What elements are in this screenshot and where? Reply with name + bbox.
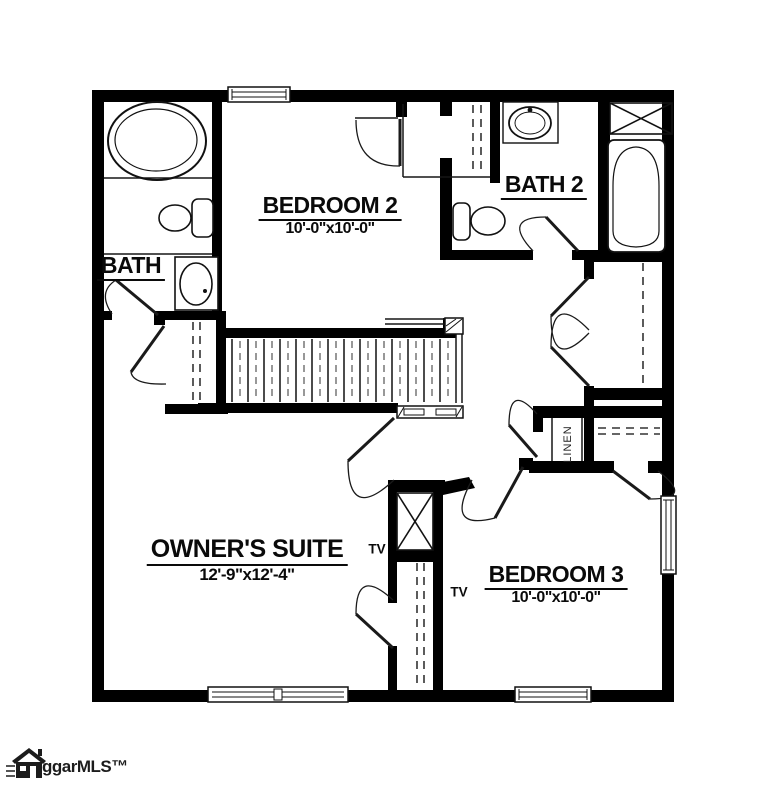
- room-label-bath2: BATH 2: [501, 172, 587, 200]
- floor-plan-page: BEDROOM 2 10'-0"x10'-0" BATH BATH 2 OWNE…: [0, 0, 772, 800]
- owner-bath-tub-icon: [108, 102, 206, 180]
- room-label-bedroom2: BEDROOM 2 10'-0"x10'-0": [259, 193, 402, 238]
- bath2-toilet-icon: [453, 203, 505, 240]
- bath2-name: BATH 2: [501, 172, 587, 200]
- room-label-bath: BATH: [97, 253, 165, 281]
- room-label-owners-suite: OWNER'S SUITE 12'-9"x12'-4": [147, 536, 348, 585]
- room-label-bedroom3: BEDROOM 3 10'-0"x10'-0": [485, 562, 628, 607]
- tv-label-bedroom3: TV: [450, 585, 467, 600]
- bath2-tub-icon: [608, 140, 665, 252]
- bedroom3-dims: 10'-0"x10'-0": [511, 589, 600, 606]
- window-owners-suite: [208, 687, 348, 702]
- stair-newel: [445, 318, 463, 334]
- window-bedroom3-bottom: [515, 687, 591, 702]
- chase-x-tv: [397, 493, 433, 550]
- window-bedroom2: [228, 87, 290, 102]
- stair-railing: [397, 406, 463, 418]
- window-bedroom3-right: [661, 496, 676, 574]
- mls-watermark: ggarMLS™: [5, 744, 128, 780]
- bedroom2-dims: 10'-0"x10'-0": [285, 220, 374, 237]
- bath-name: BATH: [97, 253, 165, 281]
- owners-suite-dims: 12'-9"x12'-4": [199, 565, 294, 584]
- owners-suite-name: OWNER'S SUITE: [147, 536, 348, 566]
- bath2-sink-icon: [503, 102, 558, 143]
- bedroom3-name: BEDROOM 3: [485, 562, 628, 590]
- bedroom2-name: BEDROOM 2: [259, 193, 402, 221]
- mls-watermark-text: ggarMLS™: [42, 757, 128, 777]
- owner-bath-sink-icon: [175, 257, 218, 310]
- linen-label: LINEN: [562, 425, 574, 462]
- owner-bath-toilet-icon: [159, 199, 213, 237]
- angled-hall-wall: [443, 477, 475, 495]
- tv-label-owners: TV: [368, 542, 385, 557]
- floor-plan-drawing: [0, 0, 772, 800]
